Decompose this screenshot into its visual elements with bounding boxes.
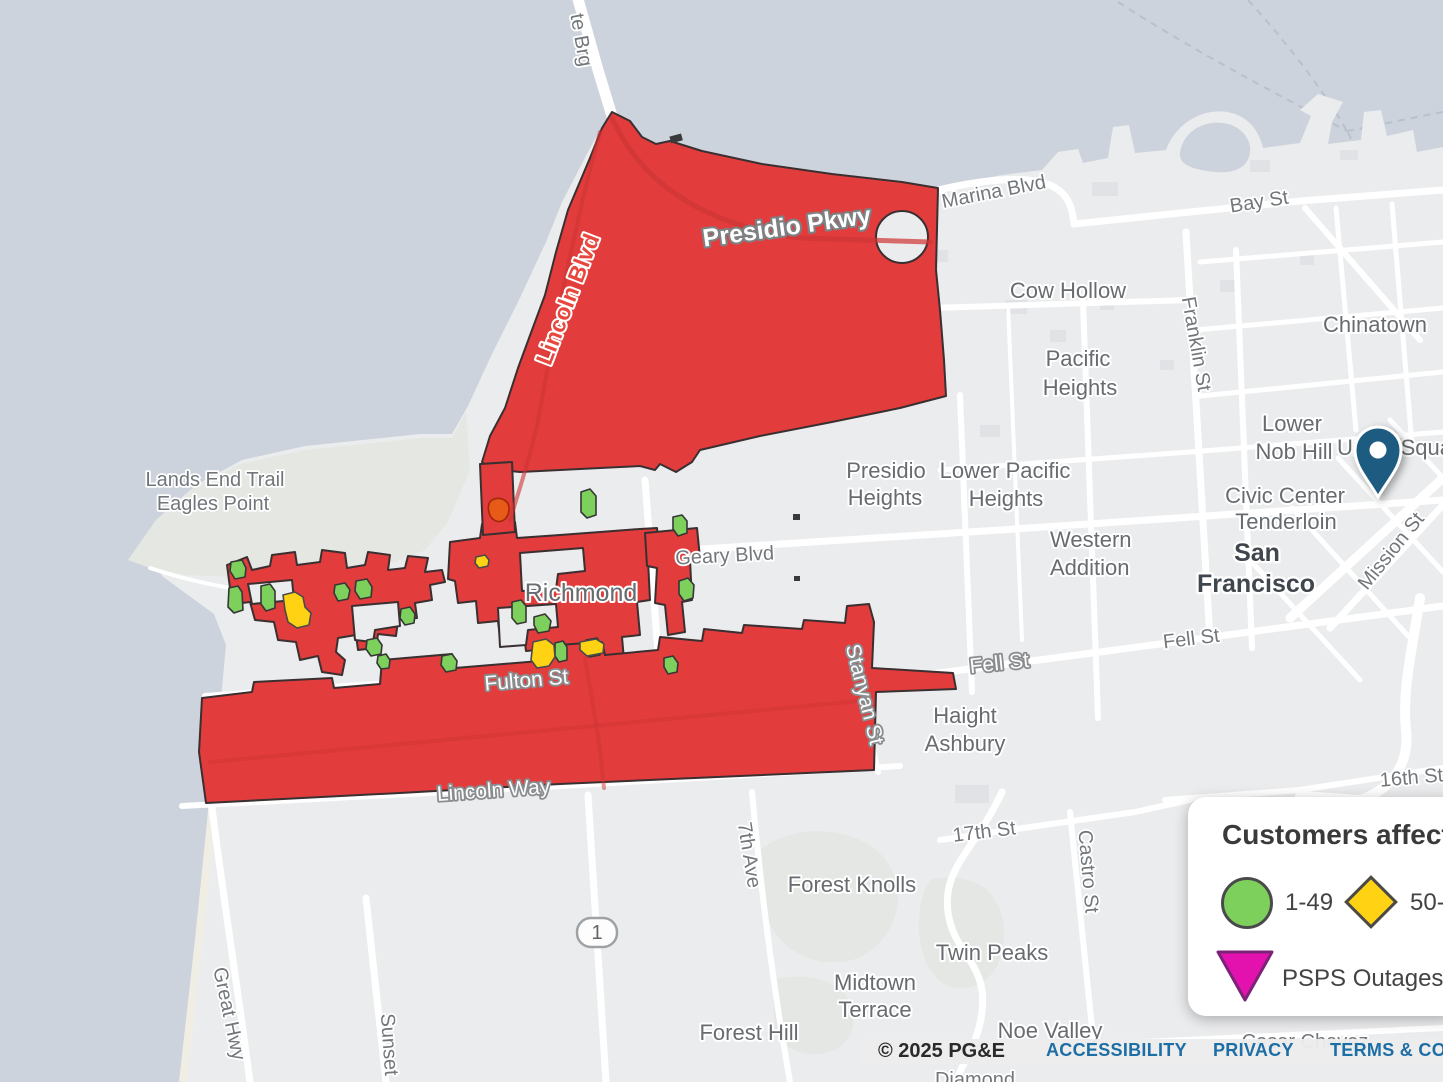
- label-civic-center: Civic Center: [1225, 483, 1345, 508]
- legend-yellow-label: 50-499: [1410, 889, 1443, 917]
- palace-lagoon-cutout: [876, 211, 928, 263]
- label-pacific-heights-1: Pacific: [1046, 346, 1111, 371]
- outage-area-green[interactable]: [555, 641, 567, 662]
- outage-area-green[interactable]: [334, 583, 350, 601]
- label-twin-peaks: Twin Peaks: [936, 940, 1049, 965]
- highway-1-label: 1: [591, 922, 602, 944]
- label-presidio-heights-2: Heights: [848, 485, 923, 510]
- label-western-addition-1: Western: [1050, 527, 1132, 552]
- label-midtown-terrace-1: Midtown: [834, 970, 916, 995]
- label-western-addition-2: Addition: [1050, 555, 1130, 580]
- legend-yellow-diamond-icon: [1344, 875, 1398, 929]
- outage-area-green[interactable]: [534, 614, 551, 633]
- outage-area-green[interactable]: [355, 579, 372, 599]
- outage-area-green[interactable]: [261, 584, 275, 611]
- outage-area-yellow[interactable]: [580, 639, 604, 656]
- outage-area-yellow[interactable]: [531, 639, 555, 668]
- label-lands-end-trail: Lands End Trail: [146, 469, 285, 491]
- label-lower-pacific-heights-1: Lower Pacific: [940, 458, 1071, 483]
- footer-bar: © 2025 PG&E ACCESSIBILITY PRIVACY TERMS …: [862, 1039, 1443, 1064]
- label-lower-pacific-heights-2: Heights: [969, 486, 1044, 511]
- terms-link[interactable]: TERMS & CONDITIONS: [1330, 1040, 1443, 1061]
- privacy-link[interactable]: PRIVACY: [1213, 1040, 1294, 1061]
- legend-psps-label: PSPS Outages: [1282, 965, 1443, 993]
- outage-area-green[interactable]: [673, 515, 687, 536]
- accessibility-link[interactable]: ACCESSIBILITY: [1046, 1040, 1187, 1061]
- label-sunset: Sunset: [376, 1013, 402, 1077]
- outage-area-green[interactable]: [377, 654, 390, 669]
- label-san-francisco-2: Francisco: [1197, 570, 1315, 598]
- outage-area-yellow[interactable]: [475, 555, 489, 568]
- outage-area-orange[interactable]: [488, 498, 509, 521]
- outage-area-green[interactable]: [581, 489, 596, 518]
- label-richmond: Richmond: [525, 579, 638, 607]
- label-tenderloin: Tenderloin: [1235, 509, 1337, 534]
- outage-area-green[interactable]: [664, 656, 678, 674]
- label-presidio-heights-1: Presidio: [846, 458, 925, 483]
- label-san-francisco-1: San: [1234, 539, 1280, 567]
- outage-area-green[interactable]: [230, 560, 246, 579]
- label-haight-ashbury-1: Haight: [933, 703, 997, 728]
- label-haight-ashbury-2: Ashbury: [925, 731, 1006, 756]
- outage-area-green[interactable]: [441, 654, 457, 672]
- label-lower-nob-hill-2: Nob Hill: [1255, 439, 1332, 464]
- outage-area-green[interactable]: [400, 607, 415, 625]
- label-lower-nob-hill-1: Lower: [1262, 411, 1322, 436]
- outage-area-green[interactable]: [366, 638, 382, 656]
- copyright-text: © 2025 PG&E: [878, 1040, 1005, 1063]
- label-forest-hill: Forest Hill: [699, 1020, 798, 1045]
- outage-map-page: { "colors":{ "water":"#cdd3dc","land":"#…: [0, 0, 1443, 1082]
- label-cow-hollow: Cow Hollow: [1010, 278, 1126, 303]
- outage-area-green[interactable]: [228, 586, 243, 613]
- label-diamond: Diamond: [935, 1069, 1015, 1082]
- label-midtown-terrace-2: Terrace: [838, 997, 911, 1022]
- legend-green-label: 1-49: [1285, 889, 1333, 917]
- legend-psps-triangle-icon: [1210, 945, 1280, 1007]
- legend-title: Customers affected: [1222, 819, 1443, 851]
- label-forest-knolls: Forest Knolls: [788, 872, 916, 897]
- legend-panel: Customers affected 1-49 50-499 PSPS Outa…: [1188, 797, 1443, 1016]
- label-chinatown: Chinatown: [1323, 312, 1427, 337]
- outage-area-green[interactable]: [679, 578, 694, 601]
- label-eagles-point: Eagles Point: [157, 493, 270, 515]
- highway-1-shield: 1: [577, 918, 617, 947]
- label-pacific-heights-2: Heights: [1043, 375, 1118, 400]
- legend-green-circle-icon: [1221, 877, 1273, 929]
